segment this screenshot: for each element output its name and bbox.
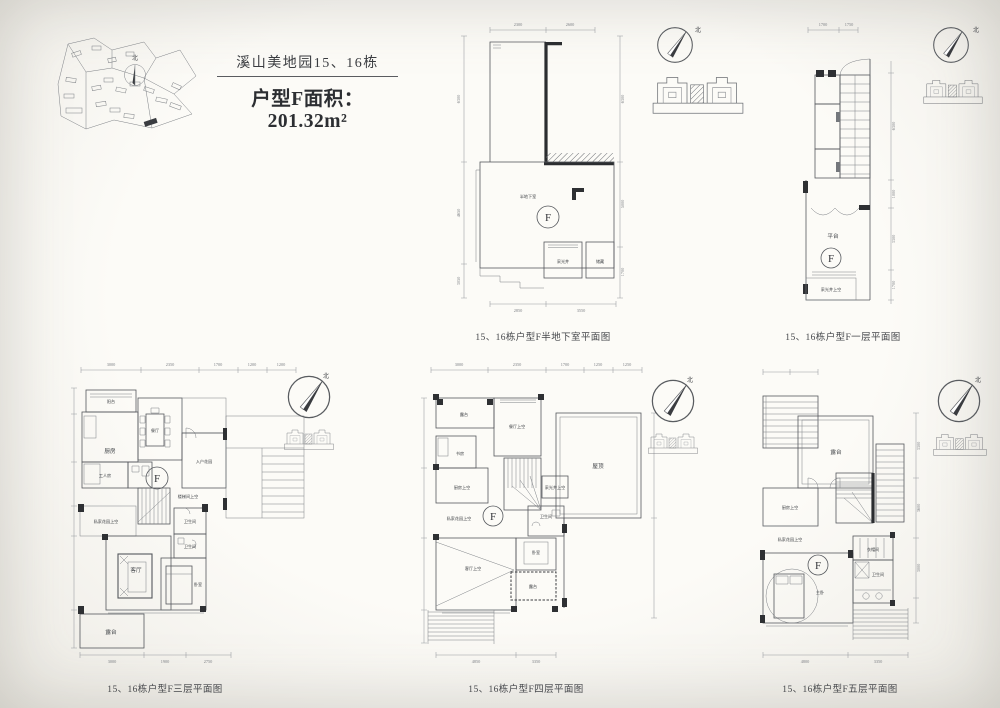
room-label-lightwell-void: 采光井上空 <box>821 286 841 292</box>
unit-area-title: 户型F面积：201.32m² <box>215 82 400 133</box>
walls <box>803 59 870 300</box>
svg-text:3300: 3300 <box>916 442 921 451</box>
room-label-lightwell-void: 采光井上空 <box>545 484 565 490</box>
rooms: 露台 餐厅上空 书房 厨房上空 私家花园上空 屋顶 采光井上空 卫生间 客厅上空… <box>447 411 604 589</box>
room-label-bedroom: 卧室 <box>194 581 202 587</box>
building-key-diagram <box>934 434 987 455</box>
room-label-kitchen-void: 厨房上空 <box>454 484 470 490</box>
svg-text:1700: 1700 <box>891 281 896 290</box>
caption-floor3: 15、16栋户型F三层平面图 <box>55 681 275 695</box>
room-label-study: 书房 <box>456 450 464 456</box>
north-label: 北 <box>975 376 981 384</box>
rooms: 露台 厨房上空 私家花园上空 主卧 衣帽间 卫生间 F <box>778 448 884 595</box>
caption-floor4: 15、16栋户型F四层平面图 <box>416 681 636 695</box>
room-label-closet: 衣帽间 <box>867 546 879 552</box>
floorplan-sheet: 北 溪山美地园15、16栋 户型F面积：201.32m² 2300 2600 6… <box>0 0 1000 708</box>
caption-basement: 15、16栋户型F半地下室平面图 <box>438 329 648 343</box>
building-key-diagram <box>649 434 698 454</box>
svg-text:3600: 3600 <box>916 504 921 513</box>
compass-key-5: 北 <box>932 374 990 462</box>
rooms: 平台 F 采光井上空 <box>821 232 841 292</box>
steps-bottom <box>853 608 908 640</box>
room-label-terrace: 露台 <box>830 448 842 456</box>
room-label-bath: 卫生间 <box>540 513 552 519</box>
room-label-balcony: 阳台 <box>107 398 115 404</box>
room-label-living: 客厅 <box>130 566 142 574</box>
stairs <box>504 458 541 510</box>
room-label-terrace-top: 露台 <box>460 411 468 417</box>
walls <box>433 394 641 613</box>
unit-marker-letter: F <box>490 511 496 523</box>
room-label-bath1: 卫生间 <box>184 518 196 524</box>
svg-text:3000: 3000 <box>916 564 921 573</box>
svg-text:6300: 6300 <box>620 95 625 104</box>
svg-text:2850: 2850 <box>514 308 523 313</box>
room-label-roof: 屋顶 <box>592 463 604 470</box>
svg-text:1000: 1000 <box>891 190 896 199</box>
svg-text:3050: 3050 <box>456 277 461 286</box>
dimensions: 1700 1750 6300 1000 3300 1700 <box>808 22 896 304</box>
room-label-lightwell: 采光井 <box>557 258 569 264</box>
site-plan-sketch: 北 <box>52 28 202 134</box>
floorplan-basement: 2300 2600 6300 4650 3050 6300 5000 1700 … <box>448 12 653 322</box>
room-label-living-void: 客厅上空 <box>465 565 481 571</box>
room-label-terrace: 平台 <box>827 232 839 240</box>
room-label-garden-void: 私家花园上空 <box>447 515 472 521</box>
svg-text:3350: 3350 <box>874 659 883 664</box>
svg-text:3000: 3000 <box>455 362 464 367</box>
stairs <box>836 473 873 523</box>
room-label-dining: 餐厅 <box>151 427 159 433</box>
pergola <box>428 610 494 644</box>
room-label-garden-void: 私家花园上空 <box>778 536 803 542</box>
svg-text:2300: 2300 <box>514 22 523 27</box>
north-label: 北 <box>687 376 693 384</box>
building-key-diagram <box>924 80 982 103</box>
svg-text:2350: 2350 <box>513 362 522 367</box>
dimensions: 3300 3600 3000 4800 3350 <box>763 369 921 664</box>
room-label-storage: 储藏 <box>596 258 604 264</box>
trellis-left <box>763 396 818 448</box>
room-label-bath2: 卫生间 <box>184 543 196 549</box>
walls <box>476 42 614 288</box>
room-label-kitchen: 厨房 <box>104 447 116 455</box>
unit-marker-letter: F <box>545 212 551 224</box>
building-key-diagram <box>653 78 743 114</box>
svg-text:1200: 1200 <box>248 362 257 367</box>
room-label-master-bedroom: 主卧 <box>816 589 824 595</box>
compass-key-2: 北 <box>920 22 990 118</box>
room-label-basement: 半地下室 <box>520 193 536 199</box>
svg-text:2600: 2600 <box>566 22 575 27</box>
svg-text:2350: 2350 <box>166 362 175 367</box>
trellis-right <box>876 444 904 522</box>
title-block: 溪山美地园15、16栋 户型F面积：201.32m² <box>215 52 400 133</box>
room-label-maid: 工人房 <box>99 472 111 478</box>
floorplan-floor1: 1700 1750 6300 1000 3300 1700 平台 F 采光井上空 <box>783 16 918 322</box>
svg-text:3000: 3000 <box>108 659 117 664</box>
svg-text:1250: 1250 <box>623 362 632 367</box>
title-divider <box>217 76 398 77</box>
room-label-terrace-bottom: 露台 <box>529 583 537 589</box>
svg-text:2750: 2750 <box>204 659 213 664</box>
room-label-stair-void: 楼梯间上空 <box>178 493 198 499</box>
caption-floor1: 15、16栋户型F一层平面图 <box>733 329 953 343</box>
svg-text:1250: 1250 <box>594 362 603 367</box>
unit-marker-letter: F <box>828 253 834 265</box>
project-title: 溪山美地园15、16栋 <box>215 52 400 72</box>
room-label-terrace: 露台 <box>105 628 117 636</box>
svg-text:1700: 1700 <box>819 22 828 27</box>
stairs <box>840 59 870 178</box>
room-label-bath: 卫生间 <box>872 571 884 577</box>
room-label-entry-garden: 入户花园 <box>196 458 212 464</box>
svg-text:1700: 1700 <box>214 362 223 367</box>
north-label: 北 <box>973 26 979 34</box>
site-buildings <box>64 46 181 127</box>
svg-text:4850: 4850 <box>472 659 481 664</box>
svg-text:6300: 6300 <box>456 95 461 104</box>
svg-text:1750: 1750 <box>845 22 854 27</box>
svg-text:3350: 3350 <box>532 659 541 664</box>
dimensions: 3000 2350 1700 1250 1250 4850 3350 <box>421 362 657 664</box>
compass-key-4: 北 <box>646 374 702 462</box>
furniture <box>766 569 818 623</box>
room-label-garden-void: 私家花园上空 <box>94 518 119 524</box>
floorplan-floor4: 3000 2350 1700 1250 1250 4850 3350 <box>416 358 661 666</box>
svg-text:3300: 3300 <box>891 235 896 244</box>
north-label: 北 <box>132 54 138 62</box>
compass-key-3: 北 <box>282 370 338 458</box>
unit-marker-letter: F <box>815 560 821 572</box>
stairs <box>138 488 170 524</box>
unit-marker-letter: F <box>154 473 160 485</box>
floorplan-floor3: 3000 2350 1700 1200 1200 3000 1900 2750 <box>66 358 316 666</box>
svg-text:4800: 4800 <box>801 659 810 664</box>
dimensions: 2300 2600 6300 4650 3050 6300 5000 1700 … <box>456 22 625 313</box>
svg-text:3000: 3000 <box>107 362 116 367</box>
svg-text:4650: 4650 <box>456 209 461 218</box>
north-label: 北 <box>695 26 701 34</box>
svg-text:5000: 5000 <box>620 200 625 209</box>
walls <box>760 416 895 626</box>
room-label-bedroom: 卧室 <box>532 549 540 555</box>
north-label: 北 <box>323 372 329 380</box>
rooms: 阳台 厨房 餐厅 工人房 入户花园 楼梯间上空 私家花园上空 客厅 卫生间 卫生… <box>94 398 212 636</box>
compass-key-1: 北 <box>646 22 750 118</box>
svg-text:3550: 3550 <box>577 308 586 313</box>
caption-floor5: 15、16栋户型F五层平面图 <box>730 681 950 695</box>
svg-text:1700: 1700 <box>620 268 625 277</box>
room-label-kitchen-void: 厨房上空 <box>782 504 798 510</box>
svg-text:6300: 6300 <box>891 122 896 131</box>
svg-text:1900: 1900 <box>161 659 170 664</box>
site-compass: 北 <box>125 54 146 86</box>
building-key-diagram <box>285 430 334 450</box>
room-label-dining-void: 餐厅上空 <box>509 423 525 429</box>
rooms: 半地下室 F 采光井 储藏 <box>520 193 614 278</box>
svg-text:1200: 1200 <box>277 362 286 367</box>
svg-text:1700: 1700 <box>561 362 570 367</box>
